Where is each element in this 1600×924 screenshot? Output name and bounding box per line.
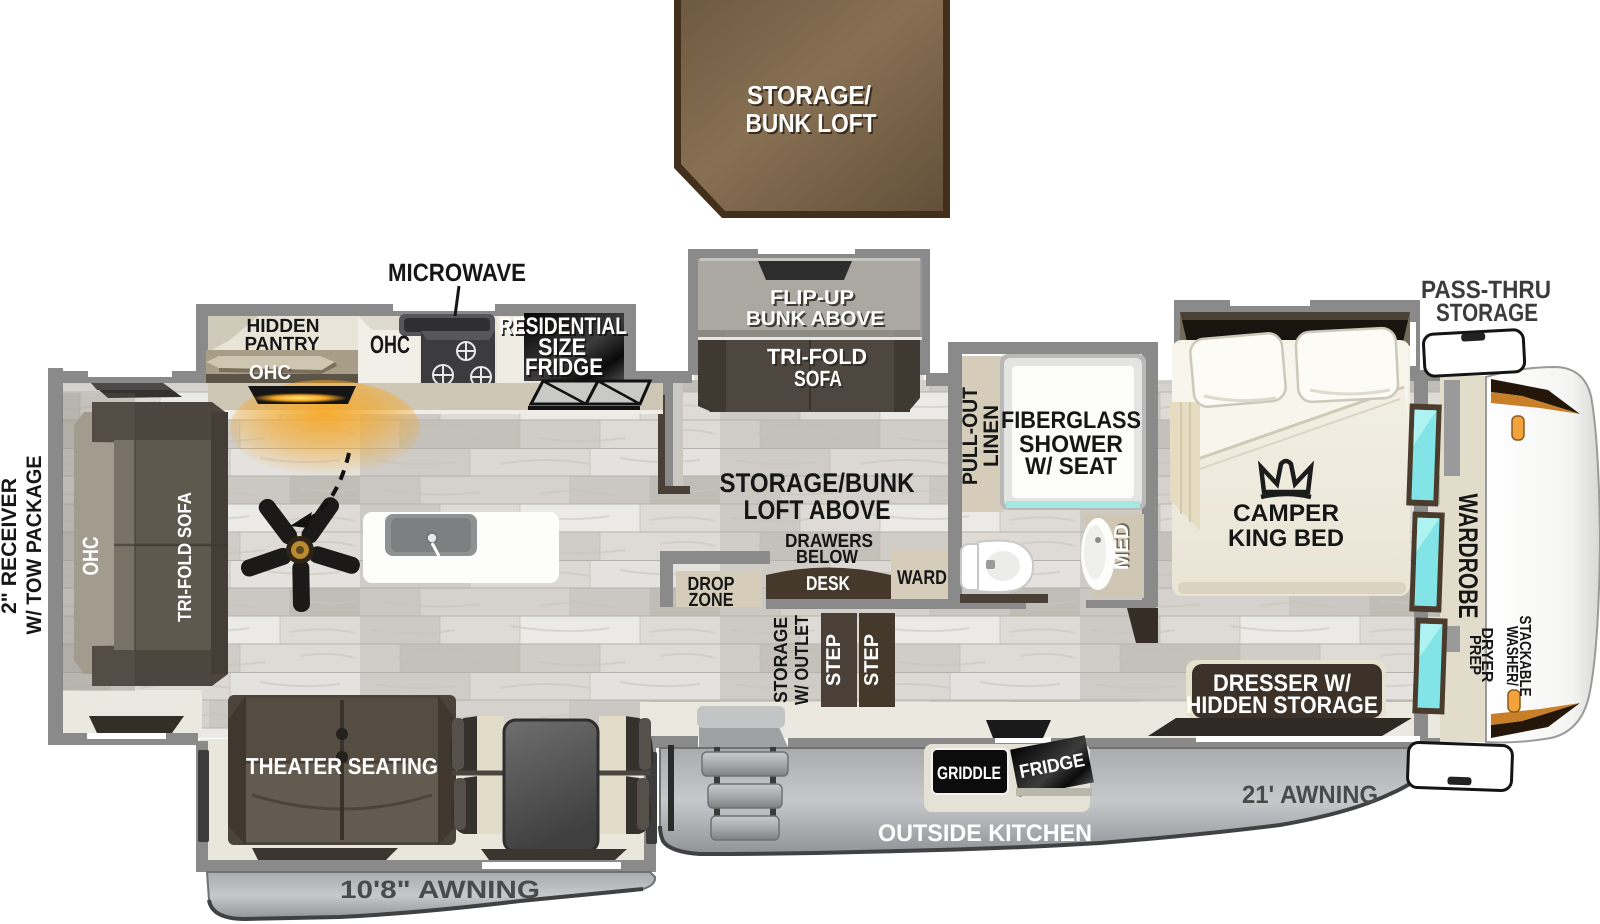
svg-text:WASHER/: WASHER/ [1503,626,1520,686]
svg-text:STORAGE/: STORAGE/ [747,80,871,110]
svg-text:DESK: DESK [806,573,850,595]
svg-text:W/ SEAT: W/ SEAT [1025,453,1117,480]
svg-text:STORAGE: STORAGE [771,617,792,703]
svg-text:W/ OUTLET: W/ OUTLET [792,615,813,705]
svg-text:BUNK ABOVE: BUNK ABOVE [746,308,884,330]
svg-text:OHC: OHC [78,536,103,575]
svg-text:HIDDEN STORAGE: HIDDEN STORAGE [1186,692,1378,719]
svg-text:WARDROBE: WARDROBE [1453,494,1483,619]
svg-text:LOFT ABOVE: LOFT ABOVE [744,495,891,525]
svg-text:BELOW: BELOW [796,547,858,568]
svg-text:21' AWNING: 21' AWNING [1242,781,1378,809]
svg-text:STEP: STEP [861,634,883,686]
svg-text:SOFA: SOFA [794,366,842,391]
svg-text:STORAGE/BUNK: STORAGE/BUNK [720,468,915,498]
svg-text:OUTSIDE KITCHEN: OUTSIDE KITCHEN [878,820,1092,847]
svg-text:PULL-OUT: PULL-OUT [959,387,982,485]
svg-text:FIBERGLASS: FIBERGLASS [1001,407,1141,434]
svg-text:PREP: PREP [1466,635,1483,675]
svg-text:MED: MED [1111,524,1133,570]
svg-text:CAMPER: CAMPER [1233,500,1339,527]
svg-text:LINEN: LINEN [980,405,1003,467]
svg-text:MICROWAVE: MICROWAVE [388,259,526,287]
svg-text:10'8" AWNING: 10'8" AWNING [340,876,540,904]
svg-text:TRI-FOLD SOFA: TRI-FOLD SOFA [175,492,196,622]
svg-text:OHC: OHC [370,331,410,359]
svg-text:STORAGE: STORAGE [1436,299,1538,327]
svg-text:FLIP-UP: FLIP-UP [770,287,854,309]
svg-text:WARD: WARD [897,567,947,589]
svg-text:ZONE: ZONE [689,590,734,611]
svg-text:PANTRY: PANTRY [245,334,320,355]
svg-text:BUNK LOFT: BUNK LOFT [746,108,877,138]
svg-text:W/ TOW PACKAGE: W/ TOW PACKAGE [23,456,46,635]
svg-text:FRIDGE: FRIDGE [525,354,603,381]
svg-text:GRIDDLE: GRIDDLE [937,763,1001,783]
svg-text:THEATER SEATING: THEATER SEATING [246,753,438,779]
svg-text:KING BED: KING BED [1228,525,1344,552]
svg-text:OHC: OHC [249,362,291,384]
svg-text:2" RECEIVER: 2" RECEIVER [0,478,21,614]
svg-text:STEP: STEP [823,634,845,686]
